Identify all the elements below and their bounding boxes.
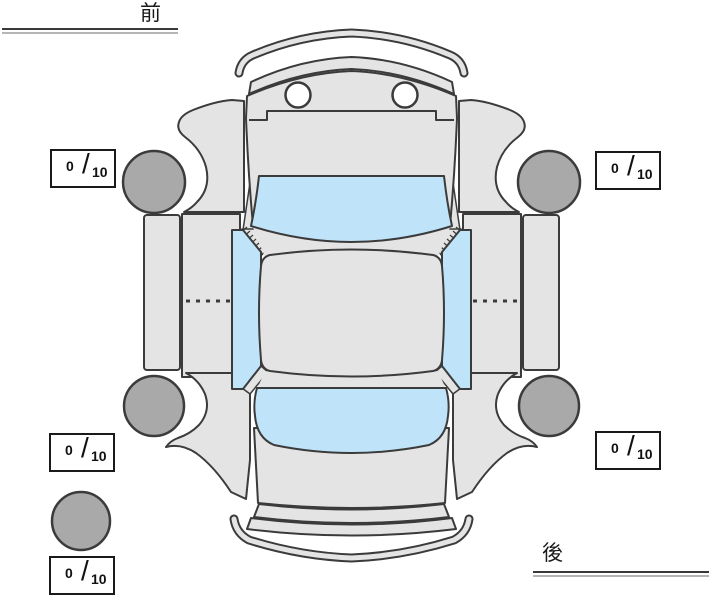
- rating-max: 10: [637, 166, 653, 182]
- front-rule: [2, 28, 178, 34]
- rating-slash: /: [627, 150, 635, 182]
- tire-condition-diagram-page: 前 後 0 / 10 0 / 10 0 / 10 0 / 10 0 / 10: [0, 0, 711, 600]
- rating-value: 0: [65, 565, 73, 581]
- rear-label: 後: [542, 542, 563, 566]
- front-rule-dark-line: [2, 28, 178, 30]
- windshield: [251, 176, 452, 242]
- rating-value: 0: [65, 442, 73, 458]
- rear-left-tire-icon: [124, 376, 184, 436]
- rating-slash: /: [82, 148, 90, 180]
- rating-max: 10: [92, 164, 108, 180]
- spare-tire-icon: [52, 492, 110, 550]
- rating-slash: /: [627, 430, 635, 462]
- rear-rule-dark-line: [533, 571, 709, 573]
- front-left-tire-icon: [123, 151, 185, 213]
- rear-right-tire-icon: [519, 376, 579, 436]
- rating-value: 0: [611, 160, 619, 176]
- rear-rule-light-line: [533, 575, 709, 577]
- front-left-fender: [178, 100, 244, 212]
- rear-rule: [533, 571, 709, 577]
- front-rule-light-line: [2, 32, 178, 34]
- rating-max: 10: [91, 571, 107, 587]
- rating-slash: /: [81, 555, 89, 587]
- tread-rating-front-left: 0 / 10: [50, 149, 116, 188]
- rear-window: [254, 388, 448, 453]
- front-right-tire-icon: [518, 151, 580, 213]
- tread-rating-spare: 0 / 10: [49, 556, 115, 595]
- rating-slash: /: [81, 432, 89, 464]
- tread-rating-rear-right: 0 / 10: [595, 431, 661, 470]
- rating-max: 10: [91, 448, 107, 464]
- left-headlight-icon: [286, 83, 311, 108]
- tread-rating-rear-left: 0 / 10: [49, 433, 115, 472]
- rating-value: 0: [611, 440, 619, 456]
- tread-rating-front-right: 0 / 10: [595, 151, 661, 190]
- car-top-view-diagram: [0, 0, 711, 600]
- right-headlight-icon: [393, 83, 418, 108]
- front-label: 前: [140, 2, 161, 26]
- rating-value: 0: [66, 158, 74, 174]
- rating-max: 10: [637, 446, 653, 462]
- roof-panel: [259, 250, 444, 377]
- left-side-molding: [144, 215, 180, 370]
- left-side-window: [232, 230, 261, 389]
